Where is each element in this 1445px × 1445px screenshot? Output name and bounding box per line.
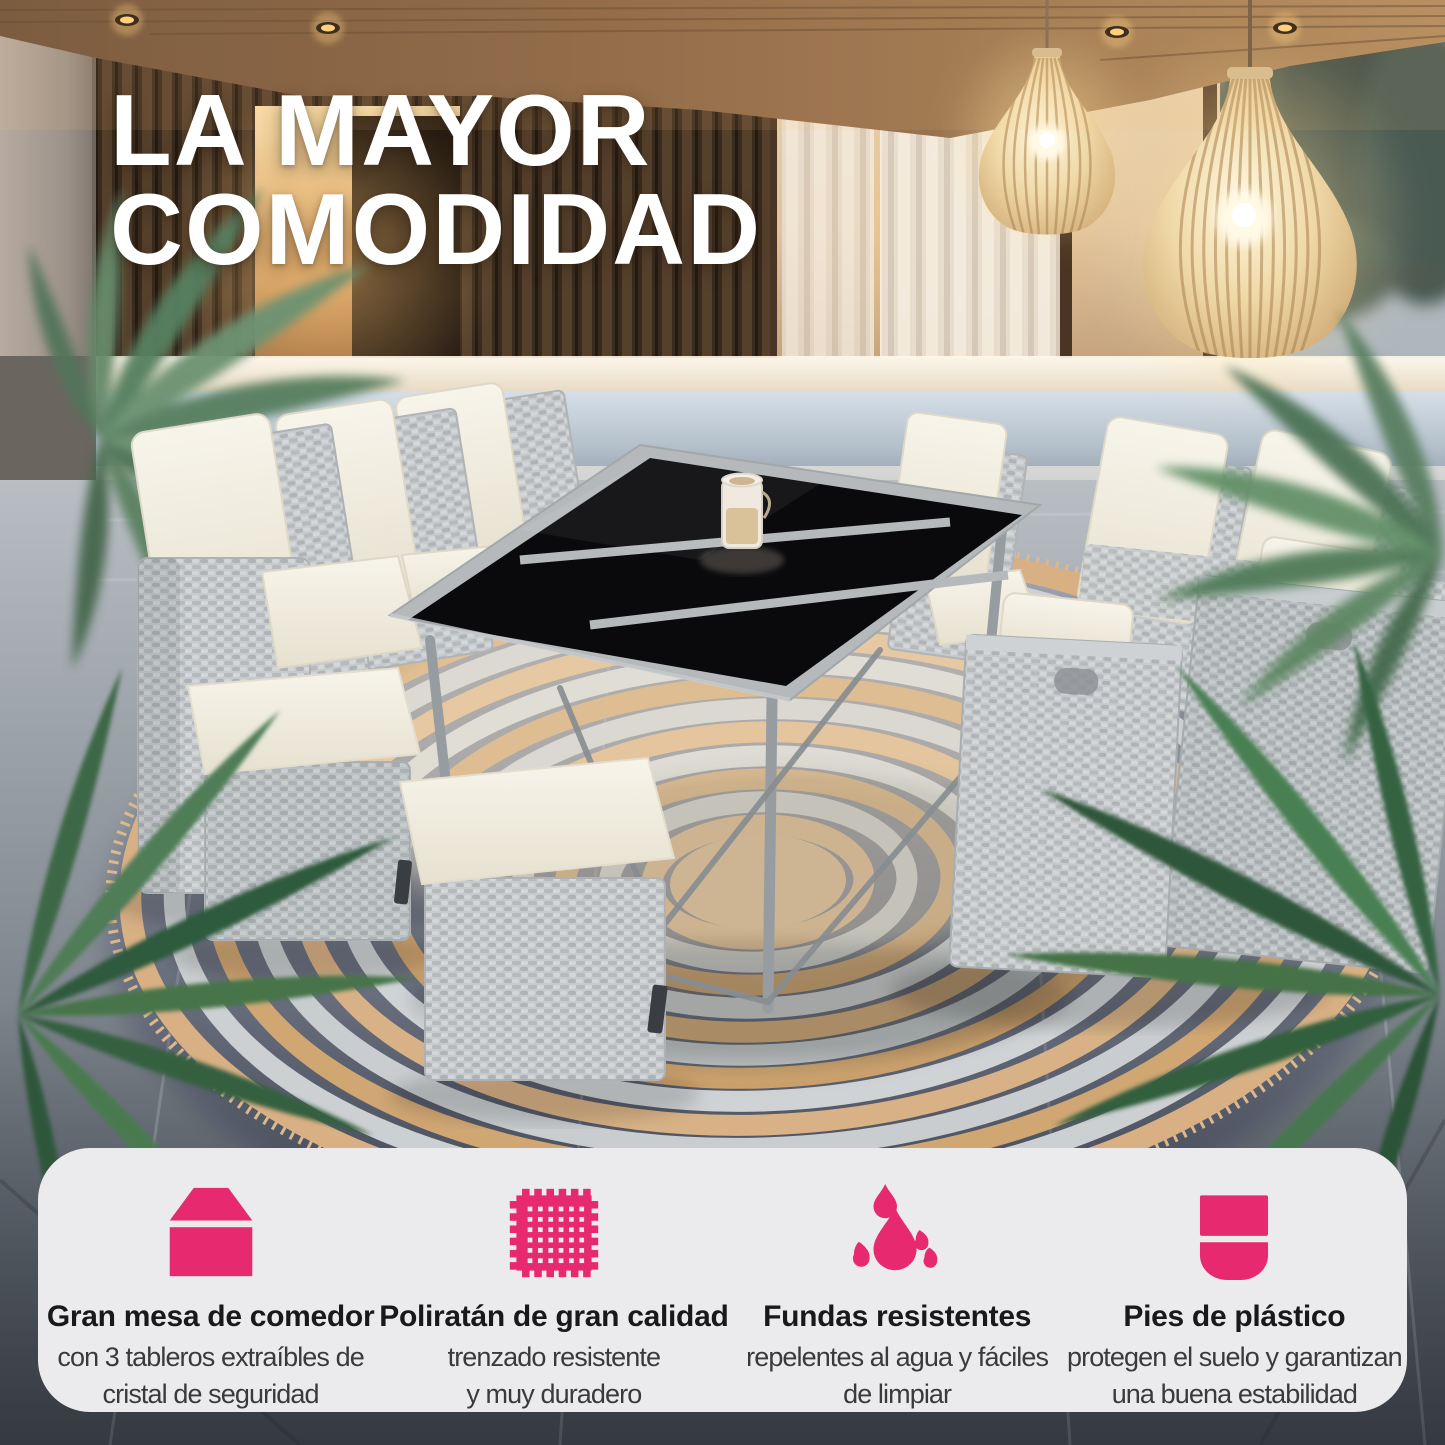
stool-2 [400,758,674,1080]
rattan-weave-icon [507,1182,601,1280]
feature-card: Gran mesa de comedor con 3 tableros extr… [38,1148,1407,1412]
plastic-foot-icon [1188,1182,1280,1280]
feature-covers: Fundas resistentes repelentes al agua y … [729,1182,1066,1413]
headline-line-1: LA MAYOR [110,82,762,181]
feature-rattan: Poliratán de gran calidad trenzado resis… [379,1182,728,1413]
stool-1 [188,668,420,940]
feature-subtitle: protegen el suelo y garantizan una buena… [1067,1339,1402,1413]
feature-title: Poliratán de gran calidad [379,1300,728,1334]
feature-title: Fundas resistentes [763,1300,1031,1334]
feature-subtitle: repelentes al agua y fáciles de limpiar [746,1339,1048,1413]
feature-title: Gran mesa de comedor [47,1300,374,1334]
feature-subtitle: trenzado resistente y muy duradero [448,1339,661,1413]
feature-table: Gran mesa de comedor con 3 tableros extr… [42,1182,379,1413]
headline-line-2: COMODIDAD [110,181,762,280]
feature-title: Pies de plástico [1123,1300,1345,1334]
product-poster: LA MAYOR COMODIDAD Gran mesa de comedor … [0,0,1445,1445]
dining-table-icon [163,1182,259,1280]
water-drops-icon [848,1182,946,1280]
feature-feet: Pies de plástico protegen el suelo y gar… [1066,1182,1403,1413]
feature-subtitle: con 3 tableros extraíbles de cristal de … [57,1339,364,1413]
headline: LA MAYOR COMODIDAD [110,82,762,280]
